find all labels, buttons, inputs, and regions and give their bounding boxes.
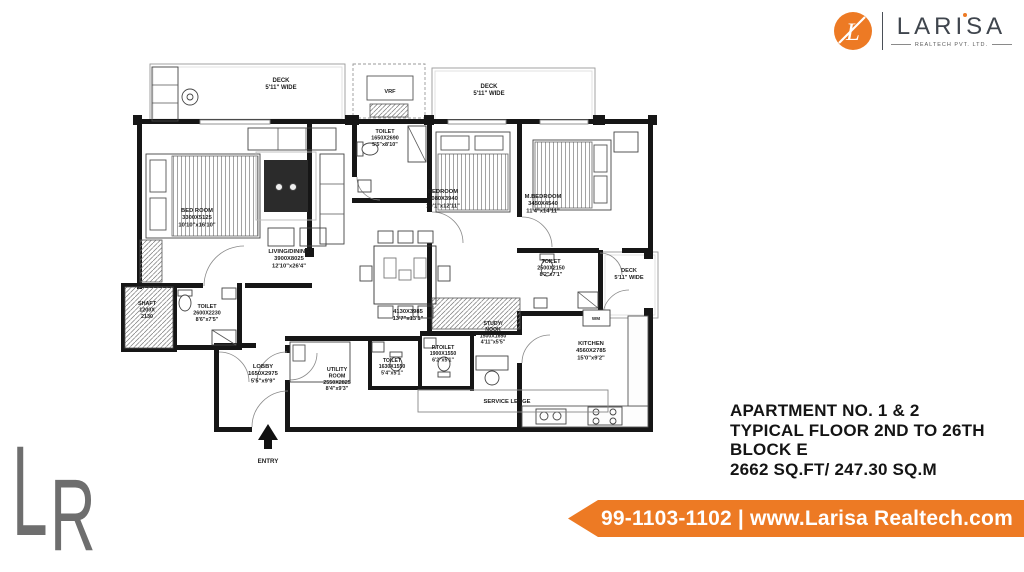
toilet-left-label: 8'6"x7'5": [196, 317, 219, 323]
door-arc: [522, 335, 550, 363]
toilet-small-label: 5'4"x5'1": [381, 370, 403, 376]
m-bedroom-label: 11'4"x14'11": [526, 208, 560, 214]
wall: [648, 115, 657, 125]
m-bedroom-label: M.BEDROOM: [525, 194, 562, 200]
sofa-icon: [320, 154, 344, 244]
lobby-label: 1650X2975: [248, 371, 278, 377]
door-arc: [290, 353, 317, 380]
deck-top-left-label: DECK: [272, 78, 290, 84]
pillow-icon: [594, 176, 607, 203]
wall: [345, 115, 359, 125]
m-bedroom-label: 3450X4540: [528, 201, 558, 207]
wall: [418, 336, 422, 390]
wall: [648, 313, 653, 432]
deck-sofa-icon: [152, 67, 178, 121]
tagline-rule-left: [891, 44, 911, 45]
service-ledge-label: SERVICE LEDGE: [484, 399, 531, 405]
door-arc: [432, 212, 463, 243]
wall: [214, 427, 252, 432]
wall: [517, 363, 522, 432]
sofa-icon: [248, 128, 336, 150]
watermark-letter-l: L: [12, 428, 48, 556]
deck-top-right-label: 5'11" WIDE: [473, 91, 504, 97]
living-dining-label: 12'10"x26'4": [272, 263, 306, 269]
armchair-icon: [268, 228, 294, 246]
pillow-icon: [594, 145, 607, 172]
utility-room-label: UTILITY: [327, 367, 348, 373]
outline: [605, 255, 655, 315]
logo: L LARISA REALTECH PVT. LTD.: [832, 10, 1012, 52]
dining-table-icon: [374, 246, 436, 304]
kitchen-label: 15'0"x9'2": [577, 355, 605, 361]
outline: [384, 258, 396, 278]
wall: [121, 348, 177, 352]
kitchen-label: KITCHEN: [578, 341, 604, 347]
living-dining-label: LIVING/DINING: [268, 249, 310, 255]
toilet-1-label: 5'5"x8'10": [372, 142, 398, 148]
wall: [648, 119, 653, 258]
toilet-small-label: TOILET: [383, 358, 402, 364]
deck-right-label: 5'11" WIDE: [614, 275, 643, 281]
chair-icon: [378, 231, 393, 243]
entry-label: ENTRY: [258, 458, 280, 465]
wall: [420, 386, 474, 390]
door-arc: [600, 253, 622, 275]
bedroom-label: BEDROOM: [428, 189, 458, 195]
tagline-text: REALTECH PVT. LTD.: [915, 42, 988, 48]
wall: [517, 248, 599, 253]
wc-tank: [438, 372, 450, 377]
wall: [214, 347, 219, 432]
chair-icon: [438, 266, 450, 281]
dining-area-label: 4130X3985: [393, 309, 423, 315]
door-arc: [522, 217, 552, 247]
wall: [214, 343, 256, 348]
contact-banner: 99-1103-1102 | www.Larisa Realtech.com: [568, 500, 1024, 537]
bedroom-label: 10'1"x12'11": [426, 203, 460, 209]
wall: [352, 198, 432, 203]
toilet-1-label: 1650X2690: [371, 136, 399, 142]
vrf-unit: [367, 76, 413, 100]
shaft-label: 1200X: [139, 308, 155, 314]
wall: [598, 250, 603, 316]
study-nook-label: STUDY/: [483, 321, 503, 327]
chair-icon: [360, 266, 372, 281]
outline: [432, 68, 595, 123]
pillow-icon: [150, 198, 166, 230]
wall: [245, 283, 312, 288]
study-nook-label: NOOK: [485, 327, 501, 333]
info-line-floor: TYPICAL FLOOR 2ND TO 26TH: [730, 421, 985, 441]
dresser-icon: [614, 132, 638, 152]
shaft-label: 2130: [141, 314, 153, 320]
bedroom-label: 3080X3940: [428, 196, 458, 202]
toilet-right-label: 8'2"x7'1": [540, 272, 563, 278]
outline: [150, 64, 345, 122]
window: [540, 120, 588, 124]
wall: [470, 331, 474, 391]
utility-room-label: 2550X2825: [323, 380, 351, 386]
pillow-icon: [475, 136, 503, 150]
door-arc: [252, 391, 288, 427]
wall: [427, 331, 522, 335]
wall: [285, 380, 290, 432]
dining-area-label: 13'7"x13'1": [393, 316, 424, 322]
info-line-block: BLOCK E: [730, 440, 985, 460]
basin-icon: [358, 180, 371, 192]
chair-icon: [378, 306, 393, 318]
logo-mark-icon: L: [832, 10, 874, 52]
wall: [517, 119, 522, 217]
pillow-icon: [441, 136, 469, 150]
logo-monogram: L: [845, 19, 860, 46]
toilet-left-label: TOILET: [197, 304, 217, 310]
kitchen-label: 4560X2785: [576, 348, 606, 354]
lobby-label: LOBBY: [253, 364, 273, 370]
wall: [644, 250, 653, 259]
coffee-table-icon: [290, 184, 297, 191]
contact-text: 99-1103-1102 | www.Larisa Realtech.com: [601, 507, 1013, 531]
p-toilet-label: 1900X1550: [430, 351, 457, 357]
wall: [370, 336, 422, 341]
wall: [427, 243, 432, 335]
basin-icon: [534, 298, 547, 308]
chair-icon: [485, 371, 499, 385]
wall: [237, 283, 242, 350]
apartment-info: APARTMENT NO. 1 & 2 TYPICAL FLOOR 2ND TO…: [730, 401, 985, 479]
wall: [288, 427, 653, 432]
toilet-right-label: TOILET: [541, 259, 561, 265]
brand-text: LARISA: [897, 13, 1006, 40]
outline: [414, 258, 426, 278]
info-line-apartment: APARTMENT NO. 1 & 2: [730, 401, 985, 421]
deck-table-icon: [187, 94, 193, 100]
wall: [593, 115, 605, 125]
desk-icon: [476, 356, 508, 370]
furniture-line: [212, 330, 236, 345]
wall: [424, 115, 434, 125]
wall: [133, 115, 142, 125]
wall: [121, 283, 125, 352]
p-toilet-label: 6'2"x5'1": [432, 357, 454, 363]
logo-tagline: REALTECH PVT. LTD.: [891, 42, 1012, 48]
wc-tank: [390, 352, 402, 357]
door-arc: [219, 352, 249, 382]
basin-icon: [222, 288, 236, 299]
p-toilet-label: P.TOILET: [432, 345, 455, 351]
wall: [285, 336, 372, 341]
lobby-label: 5'5"x9'9": [251, 378, 276, 384]
furniture-line: [408, 126, 426, 162]
vrf-label: VRF: [384, 89, 396, 95]
wall: [368, 336, 372, 390]
armchair-icon: [300, 228, 326, 246]
toilet-left-label: 2600X2230: [193, 311, 221, 317]
wc-icon: [179, 295, 191, 311]
utility-room-label: 8'4"x9'3": [326, 386, 349, 392]
living-dining-label: 3900X8025: [274, 256, 304, 262]
window: [448, 120, 506, 124]
chair-icon: [398, 231, 413, 243]
deck-top-left-label: 5'11" WIDE: [265, 85, 296, 91]
basin-icon: [372, 342, 384, 352]
watermark-letter-r: R: [50, 464, 96, 566]
logo-divider: [882, 12, 883, 50]
bed-room-label: 3300X5125: [182, 215, 212, 221]
wall: [352, 119, 357, 177]
washing-machine-label: WM: [592, 316, 600, 321]
outline: [435, 71, 592, 120]
info-line-area: 2662 SQ.FT/ 247.30 SQ.M: [730, 460, 985, 480]
wardrobe-hatch: [432, 298, 520, 329]
bed-room-label: BED ROOM: [181, 208, 213, 214]
wall: [368, 386, 422, 390]
chair-icon: [418, 231, 433, 243]
entry-arrow-icon: [258, 424, 278, 449]
outline: [399, 270, 411, 280]
brand-name: LARISA: [897, 15, 1006, 39]
bed-room-label: 10'10"x16'10": [178, 222, 216, 228]
pillow-icon: [293, 345, 305, 361]
furniture-line: [578, 292, 598, 308]
outline: [153, 67, 342, 119]
toilet-right-label: 2500X2150: [537, 266, 565, 272]
wardrobe-hatch: [140, 240, 162, 282]
window: [200, 120, 270, 124]
deck-right-label: DECK: [621, 268, 637, 274]
kitchen-counter: [628, 316, 648, 406]
toilet-small-label: 1630X1550: [379, 364, 406, 370]
deck-top-right-label: DECK: [480, 84, 498, 90]
wall: [173, 283, 177, 352]
toilet-1-label: TOILET: [375, 129, 395, 135]
flyer: DECK5'11" WIDEVRFDECK5'11" WIDEBED ROOM3…: [0, 0, 1024, 548]
door-arc: [204, 246, 244, 286]
wardrobe-hatch: [370, 104, 408, 117]
coffee-table-icon: [276, 184, 283, 191]
deck-table-icon: [182, 89, 198, 105]
pillow-icon: [150, 160, 166, 192]
coffee-table-icon: [264, 160, 308, 212]
utility-room-label: ROOM: [329, 373, 346, 379]
study-nook-label: 1500X1650: [480, 333, 507, 339]
shaft-label: SHAFT: [138, 301, 157, 307]
study-nook-label: 4'11"x5'5": [481, 340, 506, 346]
tagline-rule-right: [992, 44, 1012, 45]
